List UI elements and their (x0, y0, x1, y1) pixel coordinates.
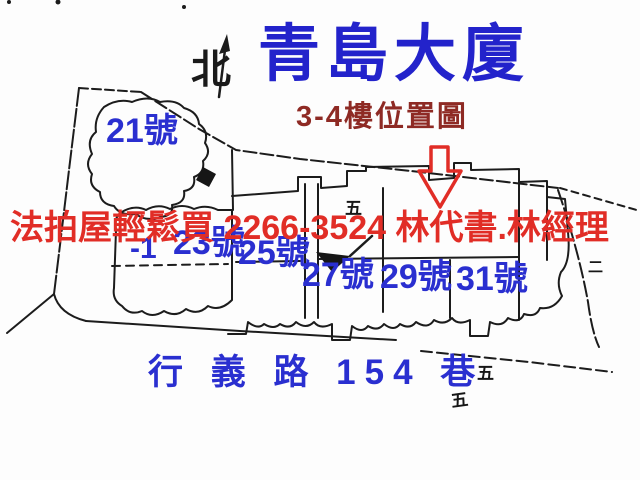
unit-label-27: 27號 (302, 258, 374, 292)
unit-label-31: 31號 (456, 262, 528, 296)
floorplan-map-page: 北 青島大廈 3-4樓位置圖 21號 -1 23號 25號 27號 29號 31… (0, 0, 640, 480)
survey-mark: 五 (450, 391, 469, 410)
ad-overlay-text: 法拍屋輕鬆買 2266-3524 林代書.林經理 (10, 211, 609, 245)
diamond-marker (196, 167, 216, 187)
survey-mark: 二 (588, 260, 603, 275)
unit-label-21: 21號 (106, 114, 178, 148)
scan-specks (7, 0, 186, 9)
unit-label-29: 29號 (380, 260, 452, 294)
page-subtitle: 3-4樓位置圖 (296, 103, 468, 132)
north-label: 北 (191, 50, 231, 90)
street-label: 行 義 路 154 巷 (148, 355, 484, 390)
survey-mark: 五 (477, 365, 494, 382)
page-title: 青島大廈 (258, 24, 530, 86)
